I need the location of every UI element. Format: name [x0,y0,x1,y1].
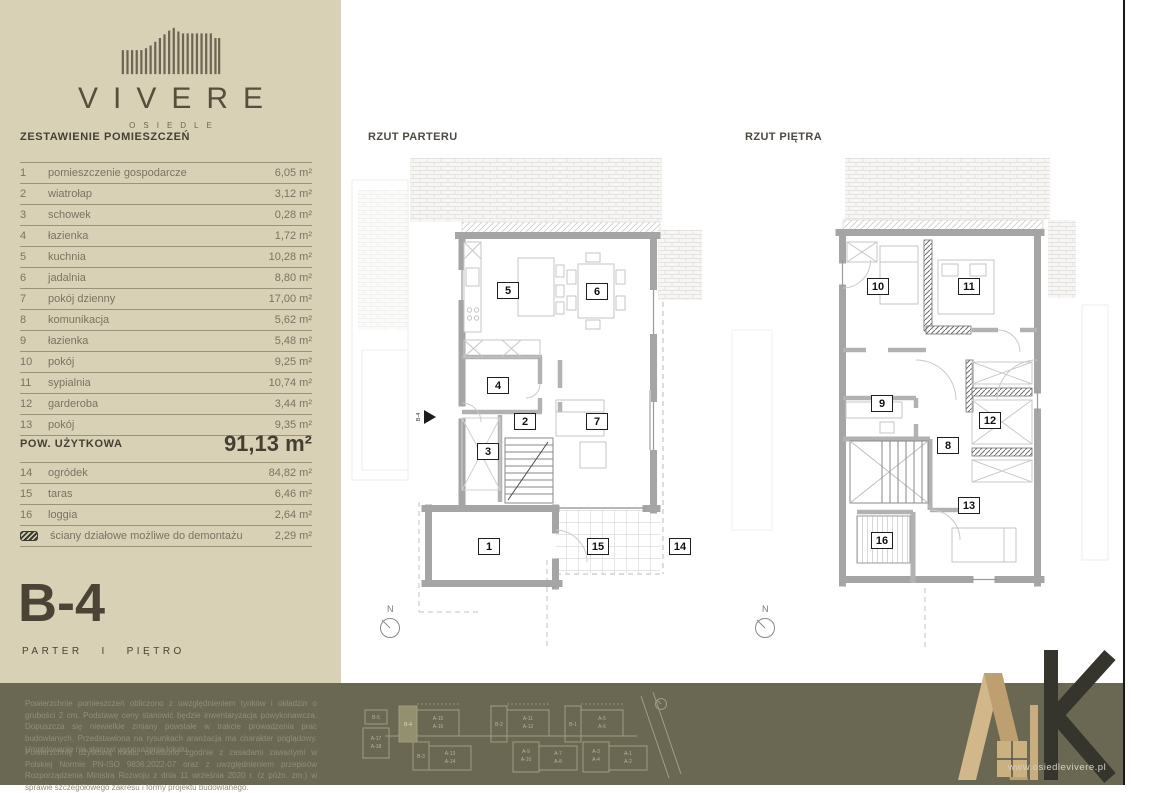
room-area: 5,48 m² [275,335,312,347]
entrance-marker: B-4 [416,410,436,424]
table-row: 12garderoba3,44 m² [20,394,312,415]
room-name: komunikacja [48,314,275,326]
site-building-a17-a18 [363,728,389,758]
north-label: N [762,604,769,614]
room-label: 16 [871,532,893,549]
room-name: łazienka [48,335,275,347]
site-building-a15-a16 [417,710,459,736]
ground-floor-plan-drawing: B-4 N [350,150,710,650]
room-name: kuchnia [48,251,269,263]
room-area: 3,12 m² [275,188,312,200]
room-label: 4 [487,377,509,394]
room-label: 10 [867,278,889,295]
table-row: 2wiatrołap3,12 m² [20,184,312,205]
room-name: schowek [48,209,275,221]
svg-text:A-12: A-12 [523,724,534,730]
room-name: pokój dzienny [48,293,269,305]
svg-text:A-1: A-1 [624,751,632,757]
room-name: pokój [48,356,275,368]
context-neighbour-left [352,180,408,480]
svg-text:A-5: A-5 [598,716,606,722]
room-name: ogródek [48,467,269,479]
site-plan: B-4 A-15 A-16 B-2 A-11 A-12 B-1 A-5 A-6 … [355,690,685,782]
svg-text:B-1: B-1 [569,722,577,728]
ground-plan-title: RZUT PARTERU [368,131,458,143]
room-number: 12 [20,398,48,410]
room-number: 2 [20,188,48,200]
room-name: jadalnia [48,272,275,284]
north-compass: N [756,604,775,638]
room-area: 6,46 m² [275,488,312,500]
room-name: sypialnia [48,377,269,389]
room-area: 2,64 m² [275,509,312,521]
room-area: 2,29 m² [275,530,312,542]
room-name: wiatrołap [48,188,275,200]
room-number: 5 [20,251,48,263]
site-building-a7-a8 [539,746,577,770]
svg-text:A-9: A-9 [522,749,530,755]
room-label: 6 [586,283,608,300]
room-number: 3 [20,209,48,221]
room-number: 6 [20,272,48,284]
site-building-a5-a6 [581,710,623,736]
room-number: 8 [20,314,48,326]
table-row: 3schowek0,28 m² [20,205,312,226]
room-name: pomieszczenie gospodarcze [48,167,275,179]
table-row: 7pokój dzienny17,00 m² [20,289,312,310]
usable-area-total: POW. UŻYTKOWA 91,13 m² [20,425,312,462]
room-label: 8 [937,437,959,454]
room-label: 14 [669,538,691,555]
room-area: 5,62 m² [275,314,312,326]
context-neighbour-right [732,305,1108,560]
room-label: 1 [478,538,500,555]
plot-dashed-lines [419,502,547,648]
vivere-logo: VIVERE OSIEDLE [0,26,341,130]
stairs [505,438,553,503]
site-building-a1-a2 [609,746,647,770]
table-row: 15taras6,46 m² [20,484,312,505]
usable-area-label: POW. UŻYTKOWA [20,438,123,450]
stairs [850,441,928,503]
room-label: 9 [871,395,893,412]
site-building-a13-a14 [429,746,471,770]
terrace [556,302,663,574]
sidebar: VIVERE OSIEDLE ZESTAWIENIE POMIESZCZEŃ 1… [0,0,341,683]
room-label: 11 [958,278,980,295]
room-name: taras [48,488,275,500]
table-row: 5kuchnia10,28 m² [20,247,312,268]
room-area: 8,80 m² [275,272,312,284]
room-area: 0,28 m² [275,209,312,221]
svg-text:A-15: A-15 [433,716,444,722]
room-name: łazienka [48,230,275,242]
room-area: 1,72 m² [275,230,312,242]
svg-text:A-4: A-4 [592,757,600,763]
first-plan-title: RZUT PIĘTRA [745,131,822,143]
room-number: 14 [20,467,48,479]
room-area: 10,74 m² [269,377,312,389]
room-name: ściany działowe możliwe do demontażu [50,530,275,542]
first-floor-plan-drawing: N [730,150,1110,650]
logo-name: VIVERE [0,82,341,116]
svg-text:A-2: A-2 [624,759,632,765]
room-number: 11 [20,377,48,389]
room-label: 12 [979,412,1001,429]
logo-letter-k [1051,650,1110,780]
house-bars-icon [116,26,226,76]
room-number: 4 [20,230,48,242]
room-area: 6,05 m² [275,167,312,179]
unit-code: B-4 [18,576,105,630]
room-number: 15 [20,488,48,500]
table-row: 9łazienka5,48 m² [20,331,312,352]
room-area: 9,25 m² [275,356,312,368]
svg-text:A-17: A-17 [371,736,382,742]
kitchen-furniture [464,242,564,357]
footer-disclaimer-2: Powierzchnię użytkową lokalu określono z… [25,747,317,793]
room-number: 10 [20,356,48,368]
outdoor-table: 14ogródek84,82 m² 15taras6,46 m² 16loggi… [20,462,312,547]
table-row: 10pokój9,25 m² [20,352,312,373]
svg-text:A-18: A-18 [371,744,382,750]
table-row: 14ogródek84,82 m² [20,462,312,484]
paving [843,158,1076,298]
room-label: 7 [586,413,608,430]
entrance-unit-label: B-4 [416,413,422,422]
table-row: 16loggia2,64 m² [20,505,312,526]
room-area: 3,44 m² [275,398,312,410]
ak-developer-logo: www.osiedlevivere.pl [950,645,1125,785]
table-row: 8komunikacja5,62 m² [20,310,312,331]
svg-text:B-5: B-5 [372,715,380,721]
table-row: 4łazienka1,72 m² [20,226,312,247]
svg-text:A-14: A-14 [445,759,456,765]
room-number: 9 [20,335,48,347]
table-row: 1pomieszczenie gospodarcze6,05 m² [20,162,312,184]
svg-text:A-11: A-11 [523,716,533,722]
svg-text:A-16: A-16 [433,724,444,730]
north-compass: N [381,604,400,638]
svg-text:A-6: A-6 [598,724,606,730]
demountable-walls-row: ściany działowe możliwe do demontażu2,29… [20,526,312,547]
table-row: 11sypialnia10,74 m² [20,373,312,394]
svg-text:A-8: A-8 [554,759,562,765]
svg-text:B-2: B-2 [495,722,503,728]
north-label: N [387,604,394,614]
svg-text:A-3: A-3 [592,749,600,755]
room-area: 17,00 m² [269,293,312,305]
svg-text:A-10: A-10 [521,757,532,763]
room-label: 15 [587,538,609,555]
room-table: 1pomieszczenie gospodarcze6,05 m² 2wiatr… [20,162,312,436]
floors-label: PARTER I PIĘTRO [22,646,185,657]
room-label: 3 [477,443,499,460]
room-table-title: ZESTAWIENIE POMIESZCZEŃ [20,131,190,143]
page-edge-line [1123,0,1125,785]
demountable-walls [924,240,1032,456]
svg-text:B-4: B-4 [404,722,412,728]
room-number: 1 [20,167,48,179]
room-label: 2 [514,413,536,430]
svg-text:A-7: A-7 [554,751,562,757]
room-number: 7 [20,293,48,305]
logo-subtitle: OSIEDLE [0,121,341,130]
logo-website-url: www.osiedlevivere.pl [1007,762,1106,773]
usable-area-value: 91,13 m² [224,431,312,457]
room-label: 5 [497,282,519,299]
room-name: loggia [48,509,275,521]
site-building-a11-a12 [507,710,549,736]
room-area: 84,82 m² [269,467,312,479]
room-name: garderoba [48,398,275,410]
room-number: 16 [20,509,48,521]
svg-text:B-3: B-3 [417,754,425,760]
brochure-page: VIVERE OSIEDLE ZESTAWIENIE POMIESZCZEŃ 1… [0,0,1152,791]
room-label: 13 [958,497,980,514]
hatched-wall-icon [20,531,38,541]
svg-text:A-13: A-13 [445,751,456,757]
table-row: 6jadalnia8,80 m² [20,268,312,289]
paving [410,158,702,300]
room-area: 10,28 m² [269,251,312,263]
